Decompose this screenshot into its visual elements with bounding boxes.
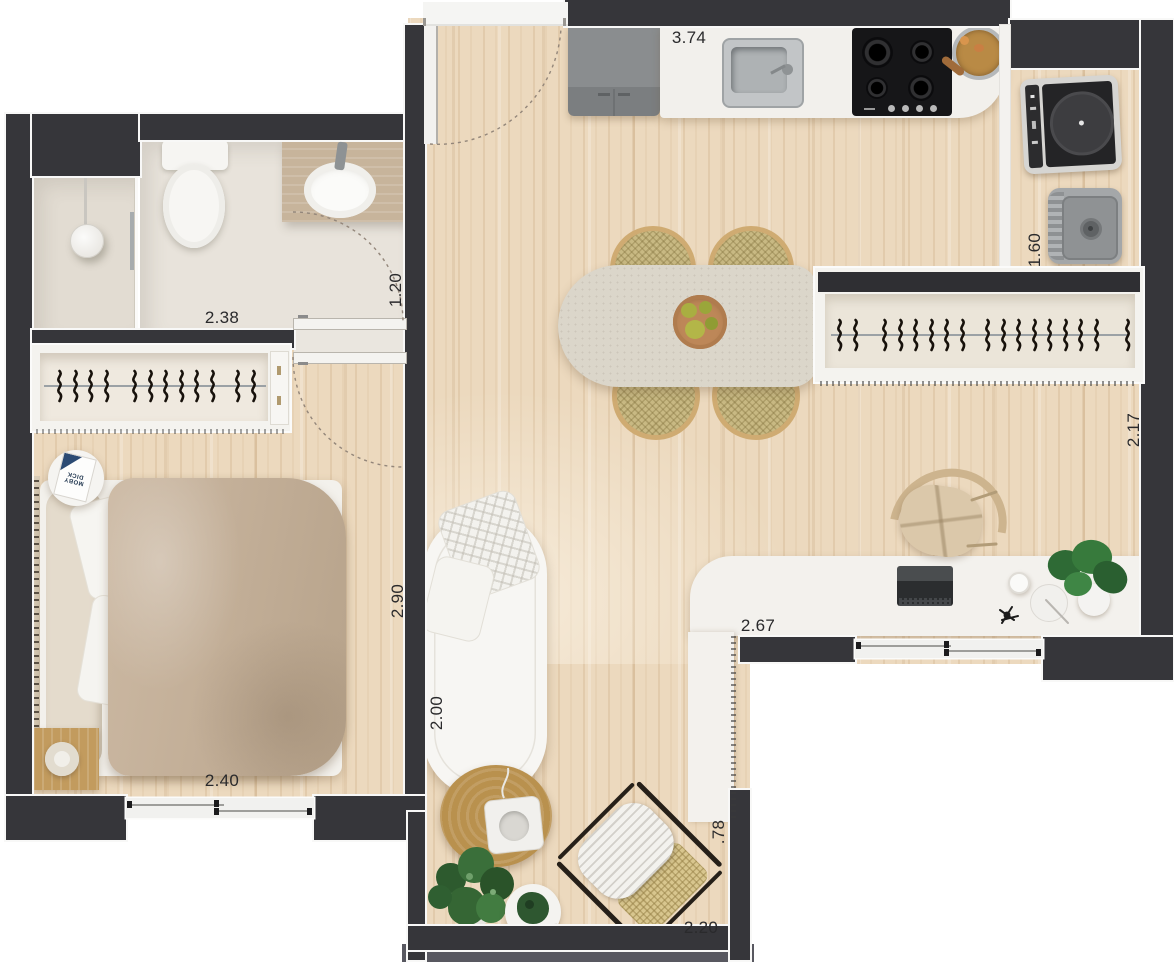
clothes-hanger-icon: [233, 369, 242, 403]
clothes-hanger-icon: [1045, 318, 1054, 352]
clothes-hanger-icon: [146, 369, 155, 403]
laundry-tank: [1048, 188, 1122, 264]
washing-machine: [1020, 75, 1123, 175]
clothes-hanger-icon: [130, 369, 139, 403]
clothes-hanger-icon: [177, 369, 186, 403]
dimension-label-bathroom-width: 2.38: [194, 308, 250, 328]
refrigerator: [568, 25, 660, 116]
rack-dotted-edge: [820, 381, 1138, 386]
bedroom-window: [126, 798, 314, 818]
floor-plan: MOBY DICK: [0, 0, 1174, 971]
wall: [740, 637, 855, 662]
clothes-hanger-icon: [983, 318, 992, 352]
entry-clothes-rack: [815, 268, 1143, 382]
desk-return: [688, 632, 734, 822]
shower-door-handle: [130, 212, 134, 270]
bed-duvet: [108, 478, 346, 776]
clothes-hanger-icon: [927, 318, 936, 352]
dimension-label-kitchen: 3.74: [661, 28, 717, 48]
dimension-label-bedroom-depth: 2.90: [388, 579, 408, 623]
towel-roll: [45, 742, 79, 776]
wall: [1141, 20, 1173, 680]
entry-threshold: [423, 2, 568, 26]
stove: [852, 28, 952, 116]
bathroom-sink: [304, 162, 376, 218]
clothes-hanger-icon: [896, 318, 905, 352]
shower-arm: [84, 176, 87, 228]
clothes-hanger-icon: [249, 369, 258, 403]
clothes-hanger-icon: [835, 318, 844, 352]
clothes-hanger-icon: [192, 369, 201, 403]
fruit-plate: [673, 295, 727, 349]
clothes-hanger-icon: [55, 369, 64, 403]
wardrobe-side-unit: [270, 351, 289, 425]
clothes-hanger-icon: [958, 318, 967, 352]
laptop: [897, 566, 953, 606]
bedroom-wardrobe: [32, 345, 290, 431]
dimension-label-rack-wall: 2.17: [1124, 408, 1144, 452]
frying-pan: [952, 26, 1006, 80]
dimension-label-sofa: 2.00: [427, 691, 447, 735]
wall: [6, 114, 32, 840]
shower-glass-partition: [134, 176, 139, 332]
bathroom-door-threshold: [294, 330, 406, 352]
wardrobe-tick-edge: [36, 429, 286, 434]
kitchen-sink: [722, 38, 804, 108]
dimension-label-balcony-width: 2.20: [673, 918, 729, 938]
dimension-label-bathroom-entry: 1.20: [386, 268, 406, 312]
clothes-hanger-icon: [1092, 318, 1101, 352]
entry-door: [424, 26, 438, 144]
clothes-hanger-icon: [942, 318, 951, 352]
clothes-hanger-icon: [1076, 318, 1085, 352]
clothes-hanger-icon: [851, 318, 860, 352]
desk-return-tick-edge: [731, 636, 736, 818]
clothes-hanger-icon: [1061, 318, 1070, 352]
wall: [1043, 637, 1173, 680]
clothes-hanger-icon: [880, 318, 889, 352]
clothes-hanger-icon: [999, 318, 1008, 352]
wall: [6, 796, 126, 840]
clothes-hanger-icon: [911, 318, 920, 352]
clothes-hanger-icon: [1123, 318, 1132, 352]
clothes-hanger-icon: [71, 369, 80, 403]
coffee-cup: [1008, 572, 1030, 594]
wall: [565, 0, 1010, 26]
clothes-hanger-icon: [1030, 318, 1039, 352]
dimension-label-laundry: 1.60: [1025, 228, 1045, 272]
dimension-label-desk: 2.67: [730, 616, 786, 636]
clothes-hanger-icon: [102, 369, 111, 403]
toilet-bowl: [163, 164, 225, 248]
wall: [32, 114, 140, 176]
shower-head: [70, 224, 104, 258]
living-window: [855, 640, 1043, 658]
wall: [140, 114, 425, 140]
monstera-plant: [1048, 540, 1128, 624]
laundry-partition: [1000, 25, 1010, 280]
bedroom-door: [293, 352, 407, 364]
dimension-label-balcony-depth: .78: [709, 810, 729, 854]
dimension-label-bedroom-width: 2.40: [194, 771, 250, 791]
book-title: MOBY DICK: [58, 468, 92, 487]
bathroom-door: [293, 318, 407, 330]
wall: [405, 25, 425, 840]
clothes-hanger-icon: [208, 369, 217, 403]
clothes-hanger-icon: [1014, 318, 1023, 352]
clothes-hanger-icon: [86, 369, 95, 403]
clothes-hanger-icon: [161, 369, 170, 403]
